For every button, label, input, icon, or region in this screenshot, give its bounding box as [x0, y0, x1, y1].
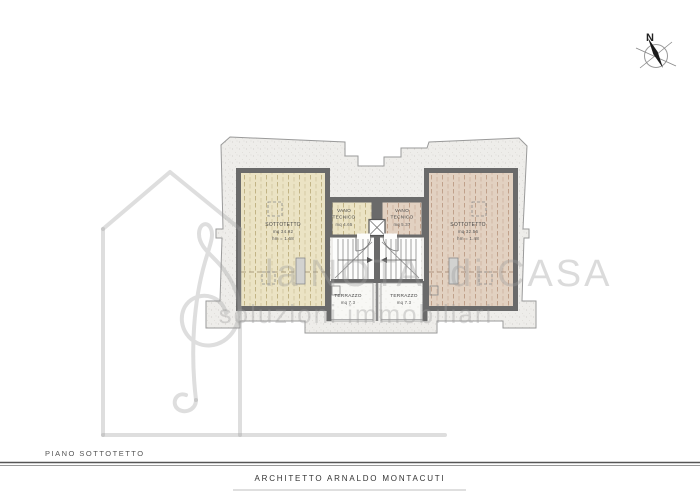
svg-text:NOTA: NOTA: [310, 253, 425, 295]
floor-plan-drawing: SOTTOTETTO mq 34.92 hm = 1.68 SOTTOTETTO…: [0, 0, 700, 495]
svg-text:VANO: VANO: [337, 208, 351, 214]
svg-text:TECNICO: TECNICO: [333, 215, 356, 221]
watermark-tagline: soluzioni immobiliari: [219, 299, 494, 329]
svg-text:hm = 1.48: hm = 1.48: [457, 236, 479, 241]
svg-text:CASA: CASA: [497, 253, 612, 295]
svg-text:la: la: [265, 253, 301, 295]
title-block: PIANO SOTTOTETTO ARCHITETTO ARNALDO MONT…: [0, 449, 700, 490]
svg-text:hm = 1.68: hm = 1.68: [272, 236, 294, 241]
svg-text:TECNICO: TECNICO: [391, 215, 414, 221]
north-compass-icon: N: [636, 32, 676, 68]
svg-text:mq 5.37: mq 5.37: [394, 222, 411, 227]
svg-text:mq 34.92: mq 34.92: [273, 229, 294, 234]
svg-text:SOTTOTETTO: SOTTOTETTO: [450, 222, 485, 228]
svg-text:SOTTOTETTO: SOTTOTETTO: [265, 222, 300, 228]
svg-text:mq 4.65: mq 4.65: [336, 222, 353, 227]
svg-text:di: di: [450, 253, 486, 295]
duct-shaft: [369, 220, 385, 236]
svg-text:mq 32.56: mq 32.56: [458, 229, 479, 234]
floor-plan-page: SOTTOTETTO mq 34.92 hm = 1.68 SOTTOTETTO…: [0, 0, 700, 495]
watermark-brand: la NOTA di CASA soluzioni immobiliari: [219, 253, 613, 329]
svg-text:VANO: VANO: [395, 208, 409, 214]
plan-title: PIANO SOTTOTETTO: [45, 449, 145, 458]
compass-needle: [648, 38, 663, 68]
architect-name: ARCHITETTO ARNALDO MONTACUTI: [254, 474, 445, 483]
